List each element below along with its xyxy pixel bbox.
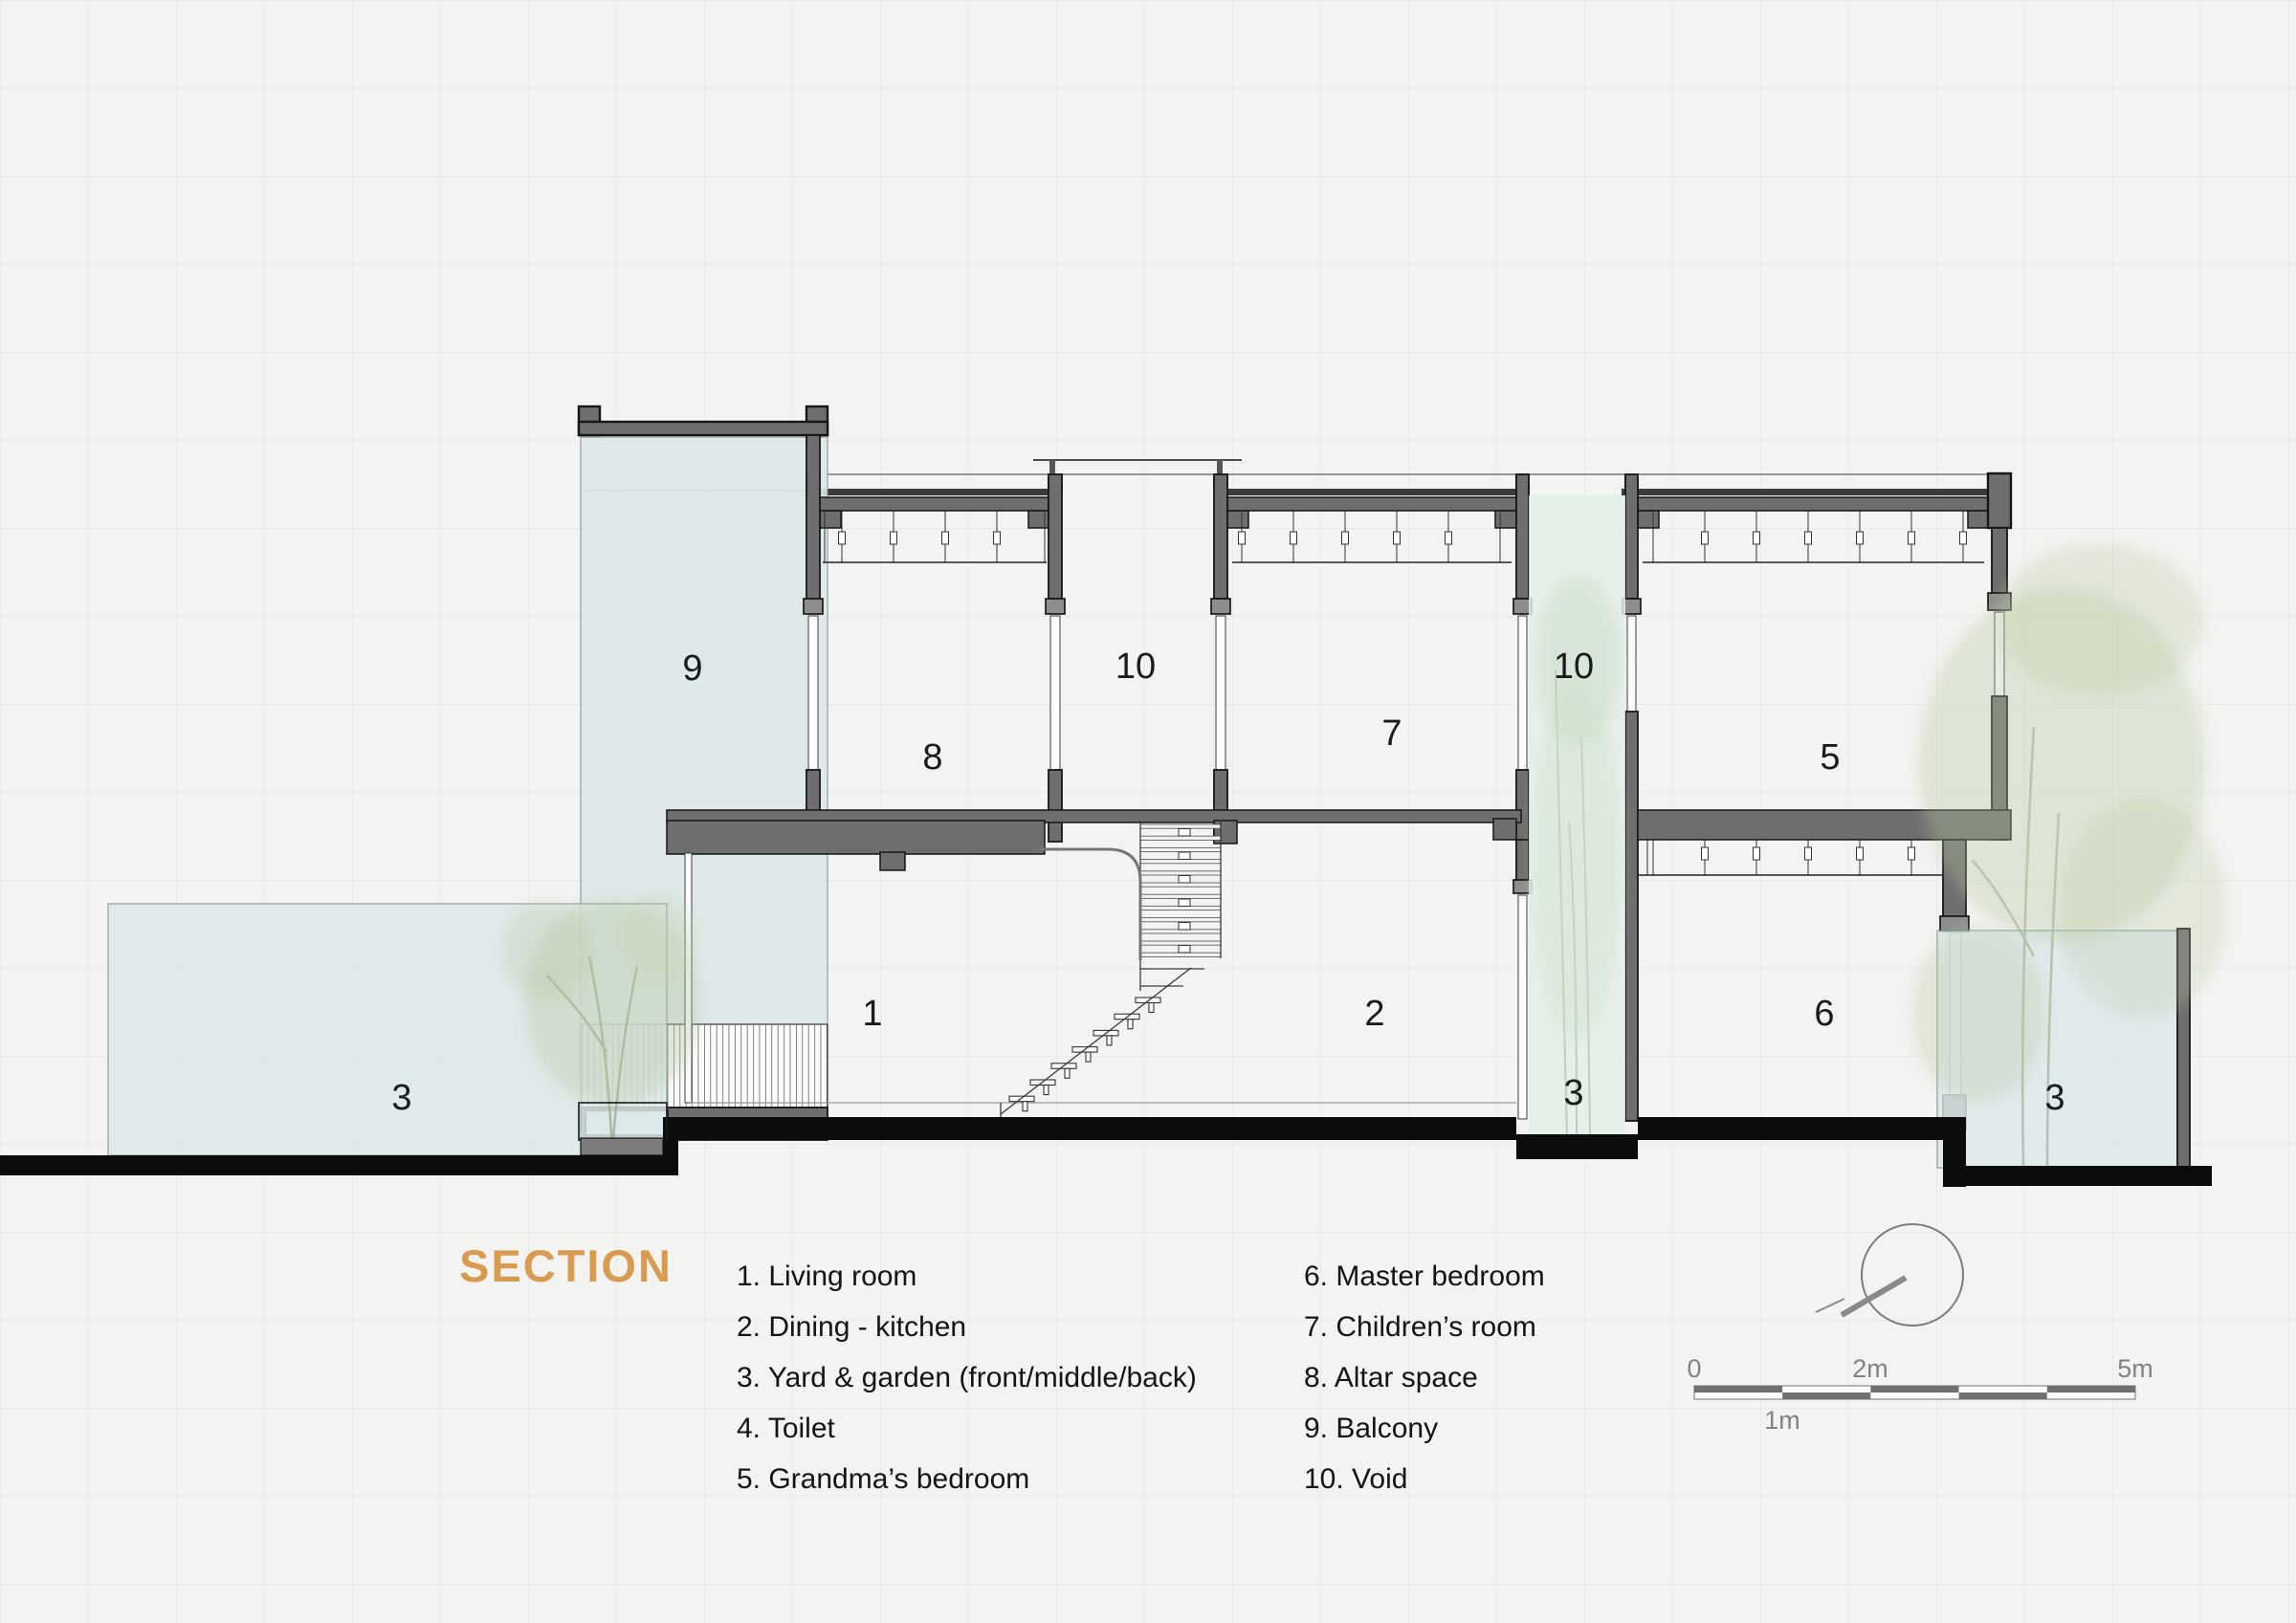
scale-label-0: 0 <box>1687 1354 1701 1383</box>
room-label-balcony: 9 <box>682 648 702 689</box>
legend-item-4: 4. Toilet <box>737 1413 836 1444</box>
scale-label-5m: 5m <box>2117 1354 2153 1383</box>
room-label-children-room: 7 <box>1381 713 1402 754</box>
room-label-yard-middle: 3 <box>1563 1073 1583 1113</box>
legend-item-3: 3. Yard & garden (front/middle/back) <box>737 1362 1197 1393</box>
legend-item-8: 8. Altar space <box>1304 1362 1478 1393</box>
room-label-altar-space: 8 <box>922 737 942 778</box>
room-label-yard-front: 3 <box>391 1078 411 1118</box>
scale-label-1m: 1m <box>1764 1406 1800 1435</box>
room-label-grandma-bedroom: 5 <box>1820 737 1840 778</box>
room-label-void-right: 10 <box>1554 647 1594 687</box>
room-label-living-room: 1 <box>862 994 882 1034</box>
room-label-master-bedroom: 6 <box>1814 994 1834 1034</box>
room-label-dining-kitchen: 2 <box>1364 994 1384 1034</box>
legend-item-10: 10. Void <box>1304 1463 1407 1495</box>
legend-item-2: 2. Dining - kitchen <box>737 1311 966 1343</box>
front-planter-soil <box>581 1138 663 1155</box>
room-label-yard-back: 3 <box>2044 1078 2064 1118</box>
legend-item-7: 7. Children’s room <box>1304 1311 1536 1343</box>
legend-item-1: 1. Living room <box>737 1261 916 1292</box>
room-label-void-left: 10 <box>1115 647 1156 687</box>
legend-item-5: 5. Grandma’s bedroom <box>737 1463 1029 1495</box>
sheet-title: SECTION <box>459 1240 673 1291</box>
scale-label-2m: 2m <box>1852 1354 1888 1383</box>
architectural-section-sheet: 9 8 10 7 10 5 1 2 6 3 3 3 SECTION 1. Liv… <box>0 0 2296 1623</box>
legend-item-6: 6. Master bedroom <box>1304 1261 1545 1292</box>
legend-item-9: 9. Balcony <box>1304 1413 1438 1444</box>
section-drawing-canvas: 9 8 10 7 10 5 1 2 6 3 3 3 SECTION 1. Liv… <box>0 0 2296 1623</box>
